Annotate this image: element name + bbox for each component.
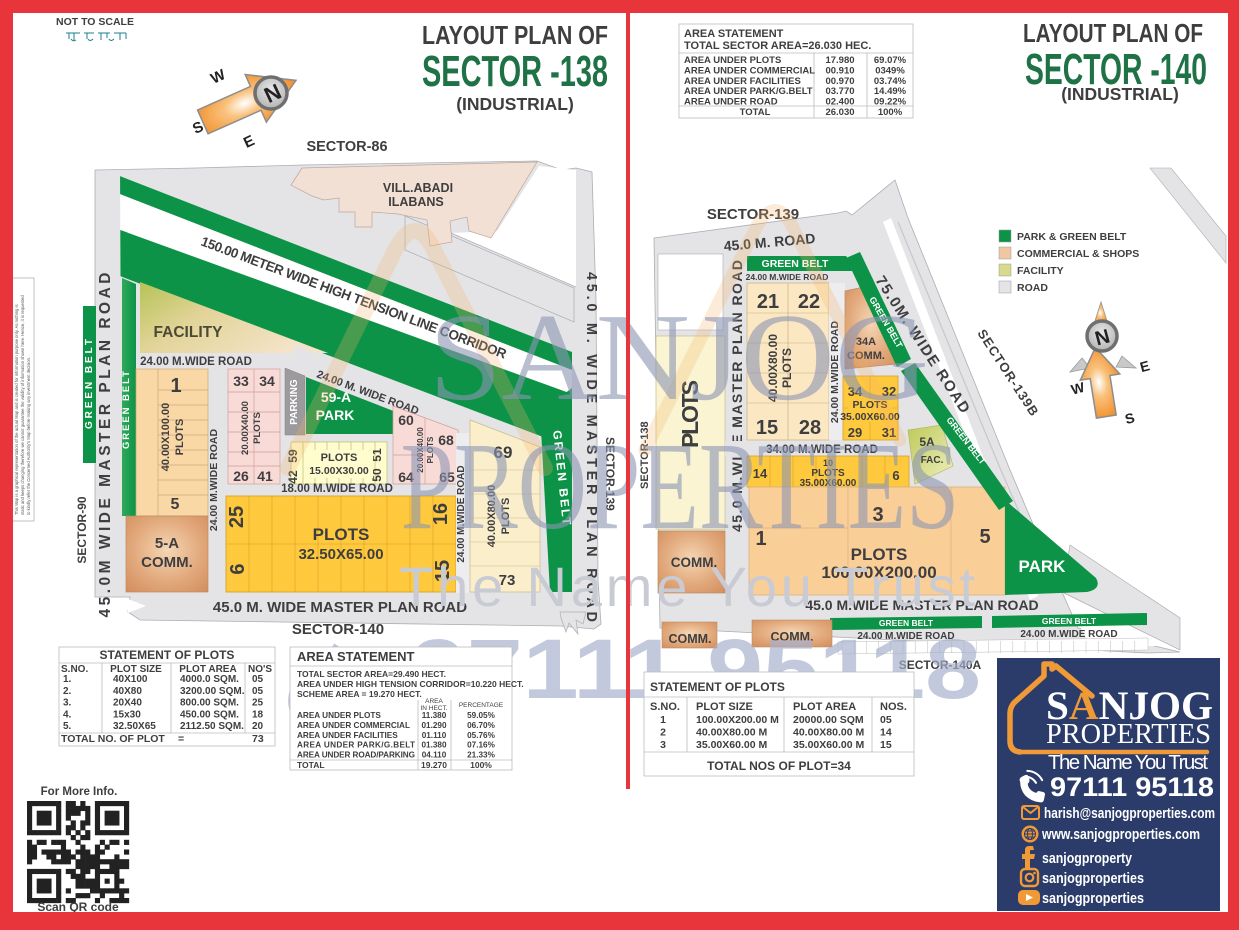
svg-text:800.00 SQM.: 800.00 SQM. — [180, 698, 239, 709]
svg-text:TOTAL: TOTAL — [297, 760, 325, 770]
svg-text:33: 33 — [233, 373, 249, 389]
svg-text:1: 1 — [170, 375, 181, 397]
svg-text:01.290: 01.290 — [421, 721, 446, 730]
svg-text:15x30: 15x30 — [113, 709, 141, 720]
svg-text:0349%: 0349% — [875, 65, 905, 76]
svg-text:03.770: 03.770 — [825, 86, 854, 97]
svg-text:18: 18 — [252, 709, 264, 720]
svg-text:34: 34 — [259, 373, 275, 389]
svg-text:FACILITY: FACILITY — [1017, 265, 1064, 277]
svg-text:GREEN BELT: GREEN BELT — [84, 339, 95, 429]
svg-text:COMM.: COMM. — [141, 554, 193, 571]
svg-text:AREA STATEMENT: AREA STATEMENT — [684, 28, 784, 40]
svg-text:S.NO.: S.NO. — [650, 701, 680, 713]
svg-text:5: 5 — [171, 496, 180, 513]
svg-text:35.00X60.00 M: 35.00X60.00 M — [793, 739, 864, 751]
svg-text:17.980: 17.980 — [825, 55, 854, 66]
svg-text:15.00X30.00: 15.00X30.00 — [309, 465, 369, 477]
svg-text:450.00 SQM.: 450.00 SQM. — [180, 709, 239, 720]
svg-text:TOTAL SECTOR AREA=26.030 HEC.: TOTAL SECTOR AREA=26.030 HEC. — [684, 40, 871, 52]
svg-text:26: 26 — [233, 468, 249, 484]
svg-text:SECTOR-86: SECTOR-86 — [306, 139, 387, 155]
svg-text:Scan QR code: Scan QR code — [37, 900, 119, 914]
svg-text:5: 5 — [979, 526, 990, 548]
svg-text:20X40: 20X40 — [113, 698, 142, 709]
svg-text:03.74%: 03.74% — [874, 76, 907, 87]
svg-text:3200.00 SQM.: 3200.00 SQM. — [180, 686, 245, 697]
svg-text:35.00X60.00 M: 35.00X60.00 M — [696, 739, 767, 751]
svg-text:100%: 100% — [878, 107, 903, 118]
svg-text:00.970: 00.970 — [825, 76, 854, 87]
svg-text:40.00X80.00 M: 40.00X80.00 M — [793, 727, 864, 739]
svg-text:1: 1 — [660, 714, 666, 726]
svg-text:25: 25 — [252, 698, 264, 709]
svg-text:(INDUSTRIAL): (INDUSTRIAL) — [1061, 84, 1179, 104]
svg-text:PLOTS: PLOTS — [174, 419, 186, 456]
svg-text:32.50X65: 32.50X65 — [113, 721, 156, 732]
svg-text:69.07%: 69.07% — [874, 55, 907, 66]
svg-text:=: = — [178, 733, 184, 745]
svg-text:PLOT SIZE: PLOT SIZE — [696, 701, 753, 713]
svg-text:static and keeps changing ther: static and keeps changing therefore we c… — [20, 295, 25, 515]
svg-text:2: 2 — [660, 727, 666, 739]
svg-text:PLOTS: PLOTS — [252, 412, 263, 444]
svg-text:06.70%: 06.70% — [467, 721, 495, 730]
svg-text:For More Info.: For More Info. — [41, 786, 118, 798]
svg-text:2.: 2. — [63, 686, 72, 697]
svg-text:20000.00 SQM: 20000.00 SQM — [793, 714, 864, 726]
svg-text:STATEMENT OF PLOTS: STATEMENT OF PLOTS — [100, 648, 235, 662]
svg-text:40.00X100.00: 40.00X100.00 — [160, 403, 172, 472]
svg-text:sanjogproperties: sanjogproperties — [1042, 890, 1144, 907]
svg-text:AREA UNDER PLOTS: AREA UNDER PLOTS — [297, 711, 381, 720]
svg-text:TOTAL: TOTAL — [740, 107, 771, 118]
svg-text:to kindly refer the Concerned: to kindly refer the Concerned Authority'… — [26, 357, 31, 515]
svg-text:AREA UNDER PARK/G.BELT: AREA UNDER PARK/G.BELT — [297, 741, 415, 750]
svg-text:COMMERCIAL & SHOPS: COMMERCIAL & SHOPS — [1017, 248, 1139, 260]
svg-text:4.: 4. — [63, 709, 72, 720]
svg-text:AREA UNDER HIGH TENSION CORRID: AREA UNDER HIGH TENSION CORRIDOR=10.220 … — [297, 679, 524, 689]
svg-text:05: 05 — [880, 714, 892, 726]
svg-text:AREA: AREA — [425, 698, 443, 705]
svg-text:NOS.: NOS. — [880, 701, 907, 713]
svg-text:(INDUSTRIAL): (INDUSTRIAL) — [456, 94, 574, 114]
svg-text:97111 95118: 97111 95118 — [1050, 772, 1214, 802]
svg-text:3.: 3. — [63, 698, 72, 709]
svg-text:LAYOUT PLAN OF: LAYOUT PLAN OF — [1023, 18, 1203, 48]
svg-text:18.00 M.WIDE ROAD: 18.00 M.WIDE ROAD — [281, 483, 393, 495]
svg-text:PLOTS: PLOTS — [321, 452, 358, 464]
svg-text:5-A: 5-A — [155, 535, 179, 552]
svg-text:40X80: 40X80 — [113, 686, 142, 697]
svg-text:TOTAL NO. OF PLOT: TOTAL NO. OF PLOT — [61, 733, 165, 745]
svg-text:AREA UNDER FACILITIES: AREA UNDER FACILITIES — [297, 731, 398, 740]
svg-text:AREA UNDER PLOTS: AREA UNDER PLOTS — [684, 55, 781, 66]
svg-text:15: 15 — [880, 739, 892, 751]
svg-text:SECTOR-90: SECTOR-90 — [75, 496, 89, 563]
svg-text:This Map is a graphical repres: This Map is a graphical representation o… — [14, 304, 19, 515]
svg-text:GREEN BELT: GREEN BELT — [121, 371, 132, 449]
svg-text:PERCENTAGE: PERCENTAGE — [459, 702, 504, 709]
svg-text:SECTOR -138: SECTOR -138 — [422, 47, 608, 96]
svg-text:05: 05 — [252, 674, 264, 685]
svg-text:PARK: PARK — [1019, 557, 1067, 576]
svg-text:TOTAL SECTOR AREA=29.490 HECT: TOTAL SECTOR AREA=29.490 HECT. — [297, 669, 446, 679]
svg-text:40X100: 40X100 — [113, 674, 148, 685]
svg-text:PROPERTIES: PROPERTIES — [401, 418, 960, 556]
svg-text:4000.0 SQM.: 4000.0 SQM. — [180, 674, 239, 685]
svg-text:21.33%: 21.33% — [467, 751, 495, 760]
svg-text:PROPERTIES: PROPERTIES — [1046, 719, 1211, 750]
svg-text:GREEN BELT: GREEN BELT — [1042, 616, 1097, 626]
svg-text:07.16%: 07.16% — [467, 741, 495, 750]
svg-text:24.00 M.WIDE ROAD: 24.00 M.WIDE ROAD — [140, 356, 252, 368]
svg-text:SCHEME AREA = 19.270 HECT.: SCHEME AREA = 19.270 HECT. — [297, 689, 422, 699]
svg-text:01.110: 01.110 — [422, 731, 447, 740]
svg-text:100.00X200.00 M: 100.00X200.00 M — [696, 714, 779, 726]
svg-text:32.50X65.00: 32.50X65.00 — [298, 546, 383, 563]
svg-text:TOTAL NOS OF PLOT=34: TOTAL NOS OF PLOT=34 — [707, 759, 851, 773]
svg-text:20: 20 — [252, 721, 264, 732]
svg-text:2112.50 SQM.: 2112.50 SQM. — [180, 721, 244, 732]
svg-text:19.270: 19.270 — [421, 760, 447, 770]
svg-text:sanjogproperty: sanjogproperty — [1042, 850, 1133, 867]
svg-text:AREA UNDER ROAD/PARKING: AREA UNDER ROAD/PARKING — [297, 751, 415, 760]
svg-text:41: 41 — [257, 468, 273, 484]
svg-text:11.380: 11.380 — [422, 711, 447, 720]
svg-text:40.00X80.00 M: 40.00X80.00 M — [696, 727, 767, 739]
svg-text:20.00X40.00: 20.00X40.00 — [240, 401, 251, 455]
svg-text:05.76%: 05.76% — [467, 731, 495, 740]
svg-text:PARK & GREEN BELT: PARK & GREEN BELT — [1017, 231, 1127, 243]
svg-text:14: 14 — [880, 727, 892, 739]
svg-text:25: 25 — [226, 506, 248, 528]
svg-text:01.380: 01.380 — [421, 741, 446, 750]
svg-text:59.05%: 59.05% — [467, 711, 495, 720]
svg-text:100%: 100% — [470, 760, 492, 770]
svg-text:AREA UNDER COMMERCIAL: AREA UNDER COMMERCIAL — [297, 721, 410, 730]
svg-text:harish@sanjogproperties.com: harish@sanjogproperties.com — [1044, 805, 1215, 822]
svg-text:NOT TO SCALE: NOT TO SCALE — [56, 16, 134, 28]
svg-text:PLOTS: PLOTS — [313, 525, 370, 544]
svg-text:SANJOG: SANJOG — [429, 289, 929, 427]
svg-text:The Name You Trust: The Name You Trust — [1048, 751, 1208, 774]
svg-text:FACILITY: FACILITY — [154, 324, 224, 341]
svg-text:1.: 1. — [63, 674, 72, 685]
svg-text:14.49%: 14.49% — [874, 86, 907, 97]
svg-text:VILL.ABADI: VILL.ABADI — [383, 181, 453, 195]
svg-text:sanjogproperties: sanjogproperties — [1042, 870, 1144, 887]
svg-text:SECTOR-140: SECTOR-140 — [292, 621, 384, 638]
svg-text:6: 6 — [227, 563, 249, 574]
svg-text:73: 73 — [252, 733, 264, 745]
svg-text:24.00 M.WIDE ROAD: 24.00 M.WIDE ROAD — [208, 429, 220, 532]
svg-text:04.110: 04.110 — [422, 751, 447, 760]
svg-text:www.sanjogproperties.com: www.sanjogproperties.com — [1041, 826, 1200, 843]
svg-text:ILABANS: ILABANS — [388, 195, 444, 209]
svg-text:ROAD: ROAD — [1017, 282, 1048, 294]
svg-text:STATEMENT OF PLOTS: STATEMENT OF PLOTS — [650, 680, 785, 694]
svg-text:26.030: 26.030 — [825, 107, 854, 118]
svg-text:00.910: 00.910 — [825, 65, 854, 76]
svg-text:05: 05 — [252, 686, 264, 697]
svg-text:AREA UNDER COMMERCIAL: AREA UNDER COMMERCIAL — [684, 65, 815, 76]
svg-text:PLOT AREA: PLOT AREA — [793, 701, 856, 713]
svg-text:3: 3 — [660, 739, 666, 751]
svg-text:AREA STATEMENT: AREA STATEMENT — [297, 649, 415, 664]
svg-text:AREA UNDER FACILITIES: AREA UNDER FACILITIES — [684, 76, 801, 87]
svg-text:5.: 5. — [63, 721, 72, 732]
svg-text:LAYOUT PLAN OF: LAYOUT PLAN OF — [422, 20, 608, 50]
svg-text:AREA UNDER PARK/G.BELT: AREA UNDER PARK/G.BELT — [684, 86, 813, 97]
svg-text:PARKING: PARKING — [289, 379, 300, 425]
